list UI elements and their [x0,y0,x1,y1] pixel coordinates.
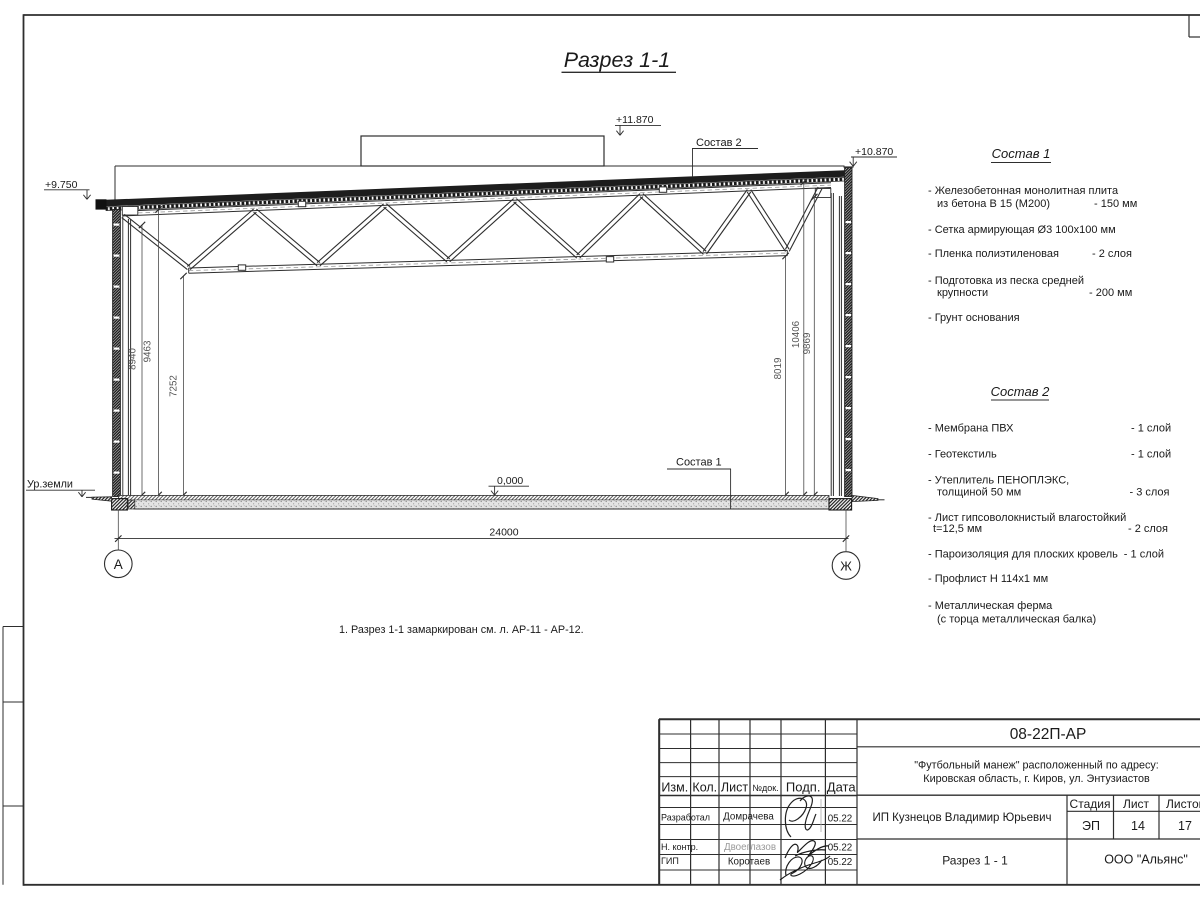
svg-text:из бетона В 15 (М200): из бетона В 15 (М200) [937,198,1050,210]
svg-text:- 1 слой: - 1 слой [1131,423,1171,435]
svg-text:- 200 мм: - 200 мм [1089,287,1132,299]
svg-text:ГИП: ГИП [661,856,679,866]
svg-text:Состав 2: Состав 2 [991,384,1050,399]
svg-text:08-22П-АР: 08-22П-АР [1010,726,1087,743]
svg-text:t=12,5 мм: t=12,5 мм [933,523,982,535]
svg-text:- Железобетонная монолитная п: - Железобетонная монолитная плита [928,185,1119,197]
svg-text:Кировская область, г. Киров, у: Кировская область, г. Киров, ул. Энтузиа… [923,773,1150,785]
svg-text:17: 17 [1178,819,1192,833]
svg-text:- Профлист Н 114х1 мм: - Профлист Н 114х1 мм [928,573,1048,585]
svg-text:Листов: Листов [1166,797,1200,811]
svg-text:Разработал: Разработал [661,813,710,823]
svg-text:(с торца металлическая балка): (с торца металлическая балка) [937,614,1096,626]
svg-text:- Пароизоляция для плоских кро: - Пароизоляция для плоских кровель [928,549,1118,561]
svg-text:- 1 слой: - 1 слой [1131,449,1171,461]
svg-text:- 2 слоя: - 2 слоя [1128,523,1168,535]
svg-text:Лист: Лист [721,781,748,795]
svg-text:Ур.земли: Ур.земли [27,479,73,491]
svg-text:+10.870: +10.870 [855,146,893,158]
svg-text:- Сетка армирующая Ø3 100х100: - Сетка армирующая Ø3 100х100 мм [928,224,1116,236]
svg-text:8940: 8940 [128,348,139,370]
svg-text:- Грунт основания: - Грунт основания [928,312,1020,324]
svg-text:Лист: Лист [1123,797,1150,811]
svg-text:7252: 7252 [168,375,179,397]
svg-text:- Геотекстиль: - Геотекстиль [928,449,997,461]
svg-text:05.22: 05.22 [828,814,853,825]
svg-text:Коротаев: Коротаев [728,857,770,868]
svg-text:- Металлическая ферма: - Металлическая ферма [928,600,1053,612]
svg-text:1. Разрез 1-1 замаркирован см.: 1. Разрез 1-1 замаркирован см. л. АР-11 … [339,624,584,636]
svg-text:толщиной 50 мм: толщиной 50 мм [937,487,1021,499]
svg-text:Стадия: Стадия [1070,797,1111,811]
svg-text:Н. контр.: Н. контр. [661,842,698,852]
svg-text:- Утеплитель ПЕНОПЛЭКС,: - Утеплитель ПЕНОПЛЭКС, [928,475,1069,487]
svg-text:- 1 слой: - 1 слой [1124,549,1164,561]
svg-text:Ж: Ж [840,559,852,573]
svg-text:Кол.: Кол. [692,781,717,795]
svg-text:Изм.: Изм. [661,781,688,795]
svg-text:9869: 9869 [802,333,813,355]
svg-text:Дата: Дата [827,780,857,795]
svg-text:Разрез 1 - 1: Разрез 1 - 1 [942,854,1008,868]
svg-text:24000: 24000 [489,527,518,539]
svg-text:Домрачева: Домрачева [723,812,774,823]
svg-text:- 2 слоя: - 2 слоя [1092,248,1132,260]
svg-text:9463: 9463 [143,340,154,362]
svg-text:- 150 мм: - 150 мм [1094,198,1137,210]
svg-text:8019: 8019 [773,358,784,380]
svg-text:крупности: крупности [937,287,988,299]
svg-text:- Пленка полиэтиленовая: - Пленка полиэтиленовая [928,248,1059,260]
svg-text:Состав 2: Состав 2 [696,137,742,149]
svg-text:№док.: №док. [752,783,778,793]
svg-text:А: А [114,557,123,572]
svg-text:Состав 1: Состав 1 [992,146,1051,161]
svg-text:- 3 слоя: - 3 слоя [1130,487,1170,499]
svg-text:"Футбольный манеж" расположенн: "Футбольный манеж" расположенный по адре… [914,760,1159,772]
svg-text:Двоеглазов: Двоеглазов [724,842,776,853]
svg-text:Состав 1: Состав 1 [676,457,722,469]
svg-text:- Подготовка из песка средней: - Подготовка из песка средней [928,275,1084,287]
svg-text:+11.870: +11.870 [616,114,654,126]
svg-text:+9.750: +9.750 [45,179,78,191]
svg-text:Подп.: Подп. [786,780,821,795]
svg-text:ООО "Альянс": ООО "Альянс" [1104,853,1188,867]
svg-text:05.22: 05.22 [828,857,853,868]
svg-text:ЭП: ЭП [1082,819,1100,833]
svg-text:10406: 10406 [791,320,802,348]
svg-text:14: 14 [1131,819,1145,833]
svg-text:Разрез 1-1: Разрез 1-1 [564,48,671,72]
svg-text:05.22: 05.22 [828,843,853,854]
svg-text:0,000: 0,000 [497,475,523,487]
svg-text:- Мембрана ПВХ: - Мембрана ПВХ [928,423,1014,435]
svg-text:ИП Кузнецов Владимир Юрьевич: ИП Кузнецов Владимир Юрьевич [872,812,1051,824]
